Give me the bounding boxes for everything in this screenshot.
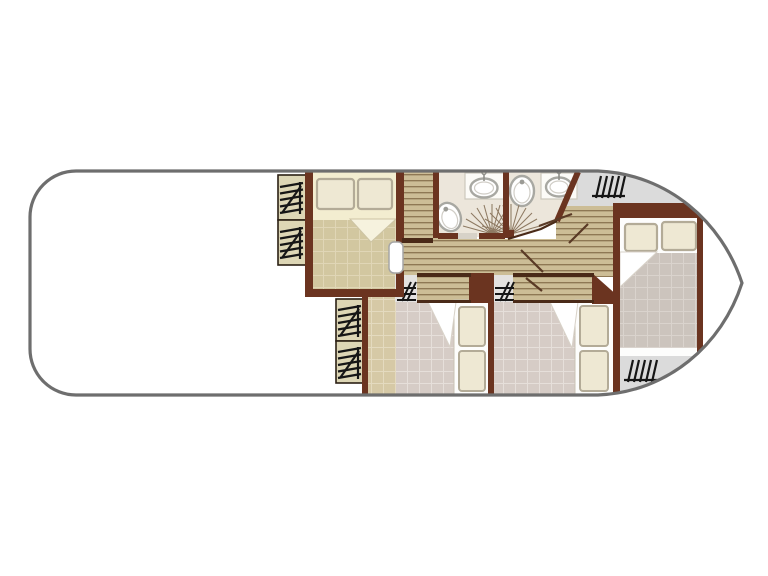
pillow (580, 306, 608, 346)
shower-threshold (456, 233, 477, 239)
pillow (625, 224, 657, 251)
floor-plan-page (0, 0, 768, 576)
door-leaf-icon (389, 242, 403, 273)
pillow (580, 351, 608, 391)
pillow (358, 179, 392, 209)
boat-floor-plan (0, 0, 768, 576)
pillow (459, 307, 485, 346)
aft-cabin (620, 218, 697, 356)
wardrobe-column-mid (336, 299, 363, 383)
pillow (662, 222, 696, 250)
pillow (317, 179, 354, 209)
owner-cabin (312, 172, 396, 290)
toilet-icon (510, 176, 534, 206)
wardrobe-column-forward (278, 175, 306, 265)
pillow (459, 351, 485, 391)
aft-deck-top (566, 171, 720, 206)
